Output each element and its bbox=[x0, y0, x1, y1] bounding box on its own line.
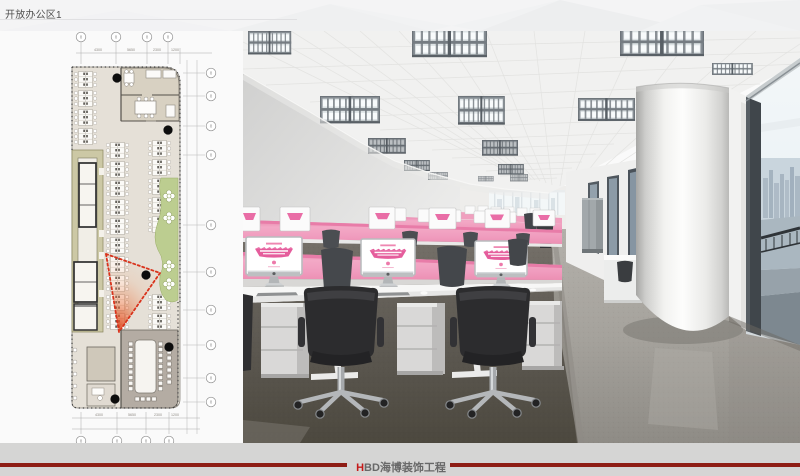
svg-text:5650: 5650 bbox=[127, 48, 135, 52]
svg-text:4300: 4300 bbox=[94, 48, 102, 52]
svg-text:2300: 2300 bbox=[153, 48, 161, 52]
svg-text:1200: 1200 bbox=[171, 413, 179, 417]
svg-text:5650: 5650 bbox=[128, 413, 136, 417]
svg-text:1200: 1200 bbox=[171, 48, 179, 52]
svg-text:2300: 2300 bbox=[154, 413, 162, 417]
svg-text:4300: 4300 bbox=[95, 413, 103, 417]
